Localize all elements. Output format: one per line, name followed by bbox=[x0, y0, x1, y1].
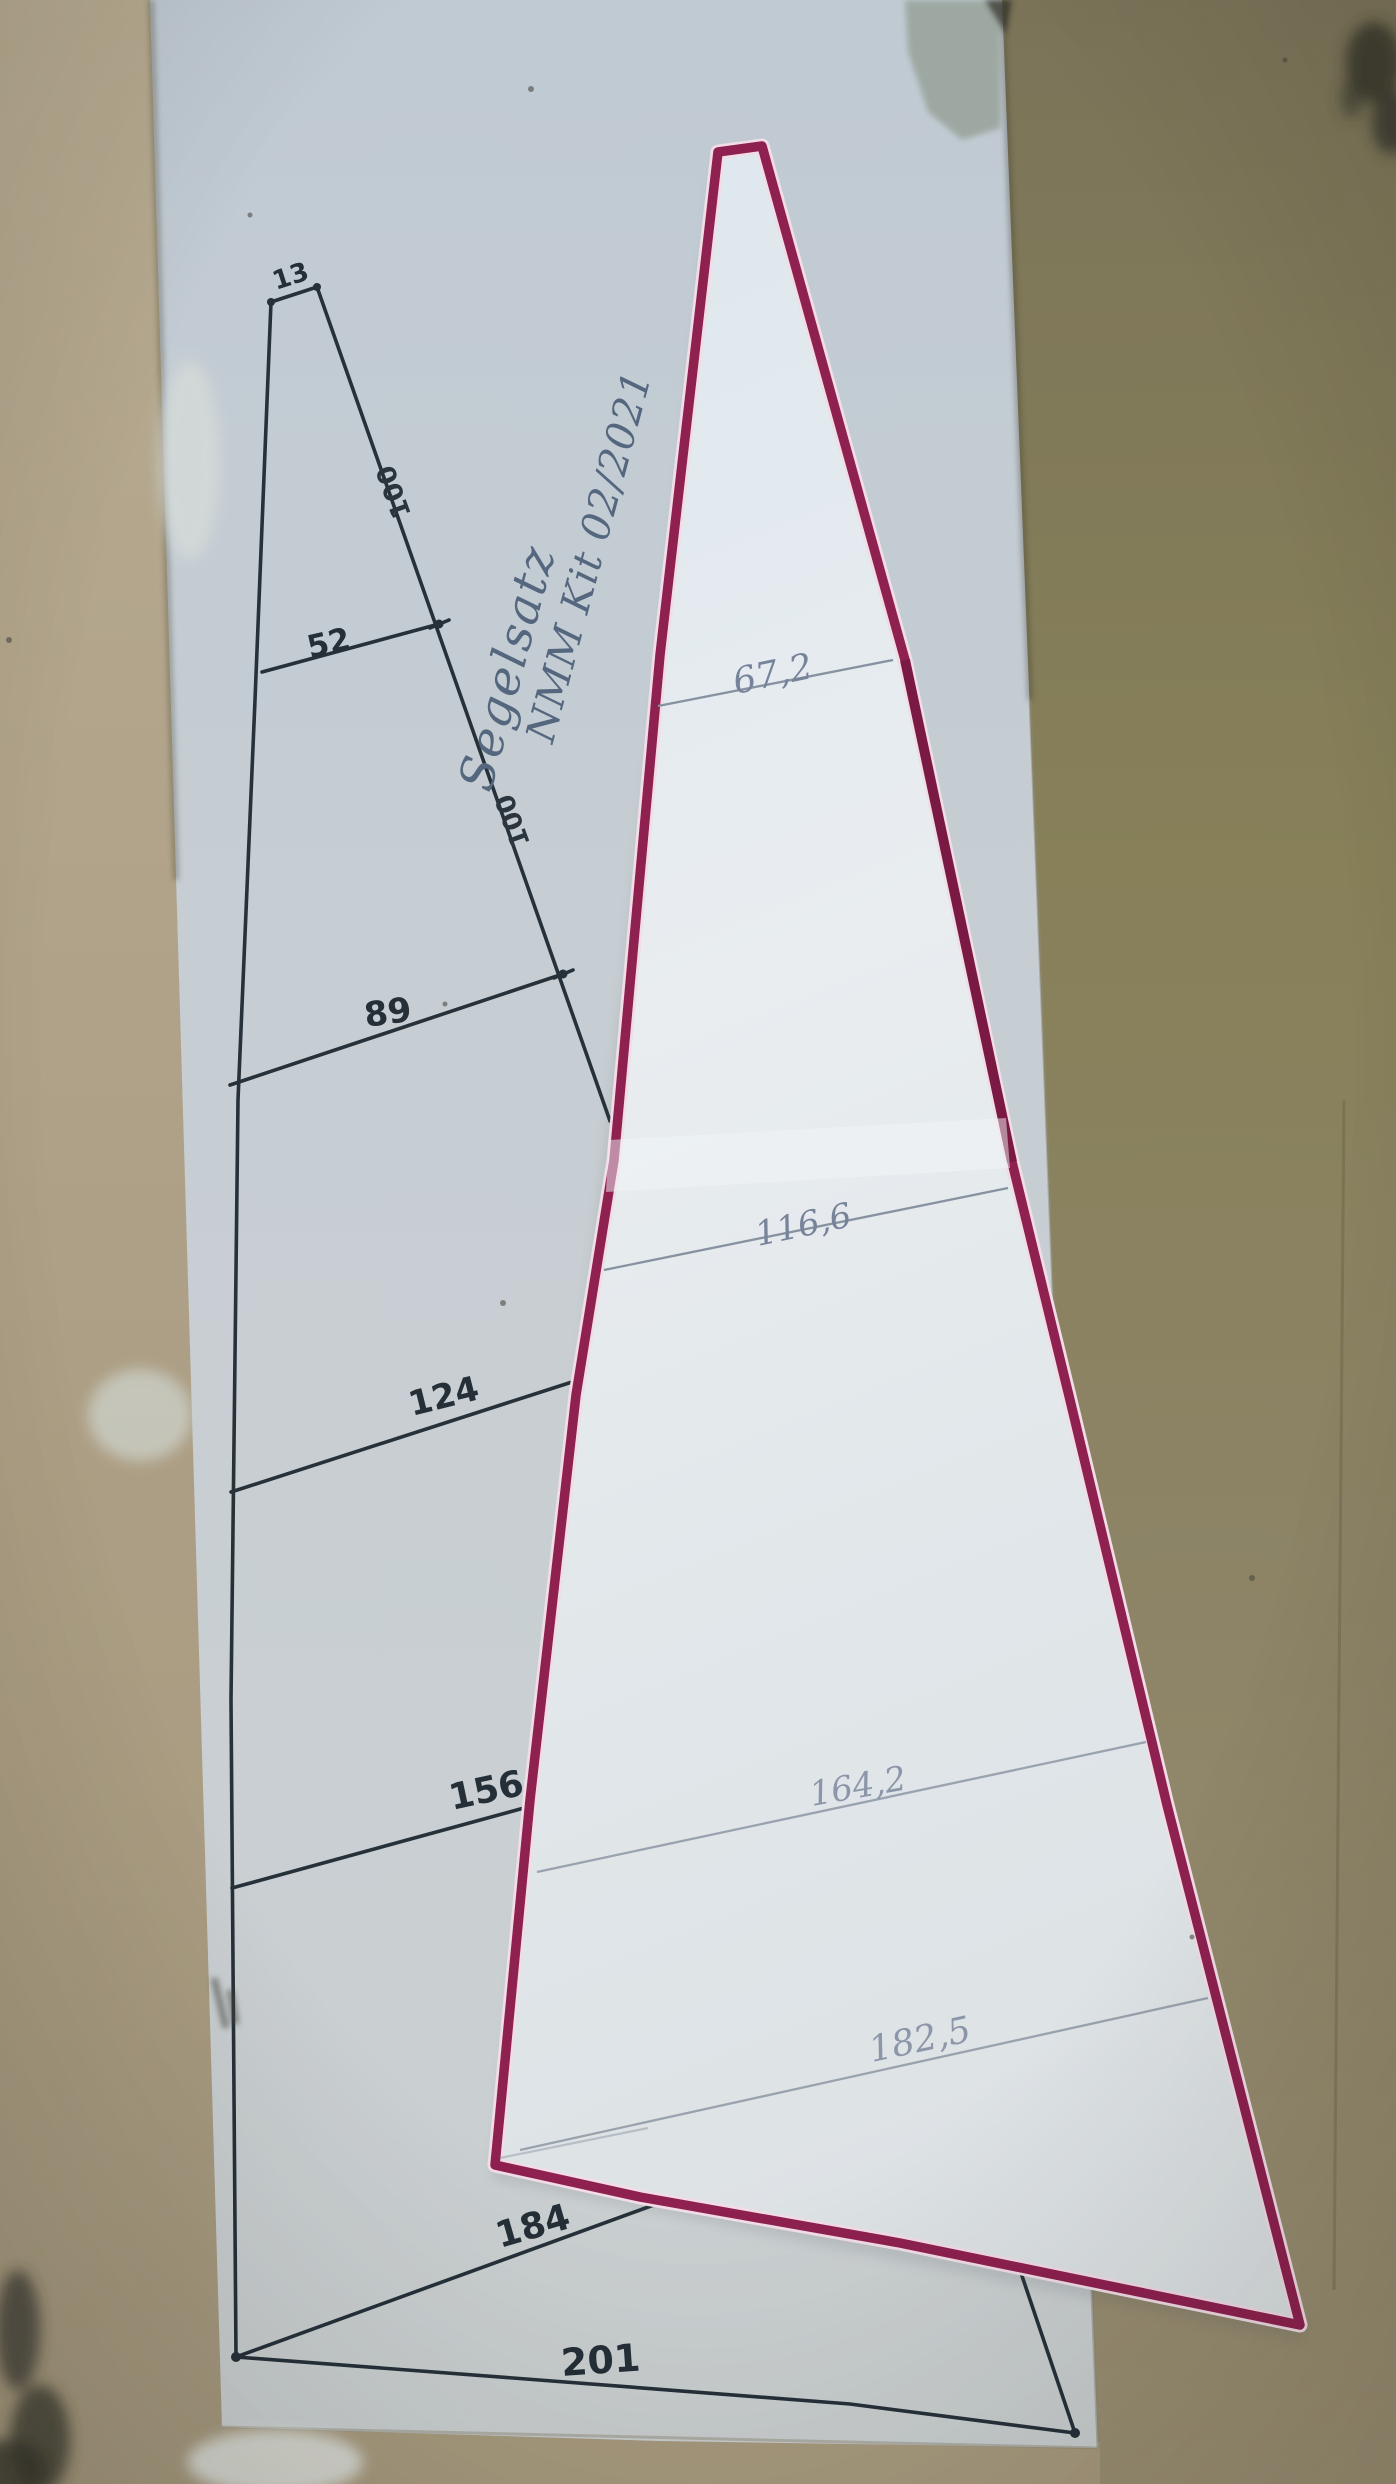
photo-sail-pattern: 13 52 89 124 156 184 201 100 100 Segelsa… bbox=[0, 0, 1396, 2484]
photo-canvas: 13 52 89 124 156 184 201 100 100 Segelsa… bbox=[0, 0, 1396, 2484]
vignette bbox=[0, 0, 1396, 2484]
